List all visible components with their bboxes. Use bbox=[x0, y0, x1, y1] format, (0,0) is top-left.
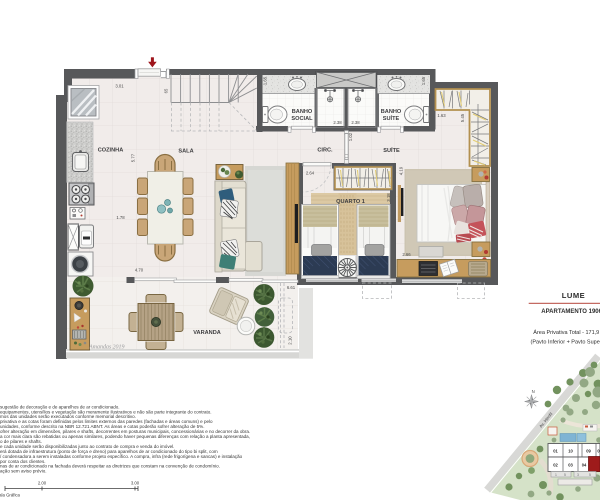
svg-text:SUÍTE: SUÍTE bbox=[383, 114, 400, 122]
svg-text:LUME: LUME bbox=[562, 291, 586, 300]
svg-text:1.63: 1.63 bbox=[437, 113, 446, 118]
svg-text:Amandas 2019: Amandas 2019 bbox=[88, 345, 125, 351]
svg-text:2.38: 2.38 bbox=[333, 120, 342, 125]
svg-text:COZINHA: COZINHA bbox=[98, 148, 123, 154]
svg-text:3.00: 3.00 bbox=[131, 481, 140, 486]
svg-text:Área Privativa Total - 171,9: Área Privativa Total - 171,9 bbox=[533, 329, 599, 336]
svg-text:VARANDA: VARANDA bbox=[193, 330, 221, 336]
svg-text:2.38: 2.38 bbox=[351, 120, 360, 125]
svg-text:2.10: 2.10 bbox=[288, 336, 293, 345]
svg-text:N: N bbox=[532, 389, 535, 394]
svg-text:3.18: 3.18 bbox=[386, 193, 391, 202]
svg-text:01: 01 bbox=[553, 449, 558, 454]
svg-text:Escala Gráfica: Escala Gráfica bbox=[0, 493, 21, 498]
svg-text:QUARTO 1: QUARTO 1 bbox=[336, 199, 365, 205]
svg-text:5: 5 bbox=[589, 473, 591, 477]
svg-text:1.78: 1.78 bbox=[116, 215, 125, 220]
svg-text:1.02: 1.02 bbox=[348, 132, 353, 141]
svg-text:1: 1 bbox=[555, 473, 557, 477]
svg-text:03: 03 bbox=[568, 463, 573, 468]
svg-text:04: 04 bbox=[582, 463, 587, 468]
svg-text:2.00: 2.00 bbox=[38, 481, 47, 486]
svg-text:4.19: 4.19 bbox=[399, 166, 404, 175]
svg-text:BANHO: BANHO bbox=[381, 109, 402, 115]
svg-text:3.01: 3.01 bbox=[115, 84, 124, 89]
svg-text:SOCIAL: SOCIAL bbox=[291, 116, 313, 122]
svg-text:SUÍTE: SUÍTE bbox=[383, 146, 400, 154]
svg-text:65: 65 bbox=[164, 88, 169, 93]
svg-text:5.45: 5.45 bbox=[460, 113, 465, 122]
svg-text:4.70: 4.70 bbox=[135, 268, 144, 273]
svg-text:5.77: 5.77 bbox=[131, 153, 136, 162]
svg-text:6.61: 6.61 bbox=[287, 285, 296, 290]
svg-text:09: 09 bbox=[586, 449, 591, 454]
svg-text:1.65: 1.65 bbox=[421, 76, 426, 85]
svg-text:10: 10 bbox=[568, 449, 573, 454]
svg-text:5: 5 bbox=[564, 473, 566, 477]
svg-text:BANHO: BANHO bbox=[292, 109, 313, 115]
svg-text:02: 02 bbox=[553, 463, 558, 468]
svg-text:SALA: SALA bbox=[178, 149, 193, 155]
svg-text:2.64: 2.64 bbox=[306, 171, 315, 176]
svg-text:2.66: 2.66 bbox=[402, 252, 411, 257]
svg-text:3: 3 bbox=[577, 473, 579, 477]
svg-text:ação sem aviso prévio.: ação sem aviso prévio. bbox=[0, 469, 47, 474]
svg-text:1.65: 1.65 bbox=[263, 76, 268, 85]
svg-text:(Pavto Inferior + Pavto Superi: (Pavto Inferior + Pavto Superior) bbox=[531, 339, 600, 345]
svg-text:APARTAMENTO 1906: APARTAMENTO 1906 bbox=[541, 309, 600, 315]
svg-text:CIRC.: CIRC. bbox=[317, 148, 333, 154]
